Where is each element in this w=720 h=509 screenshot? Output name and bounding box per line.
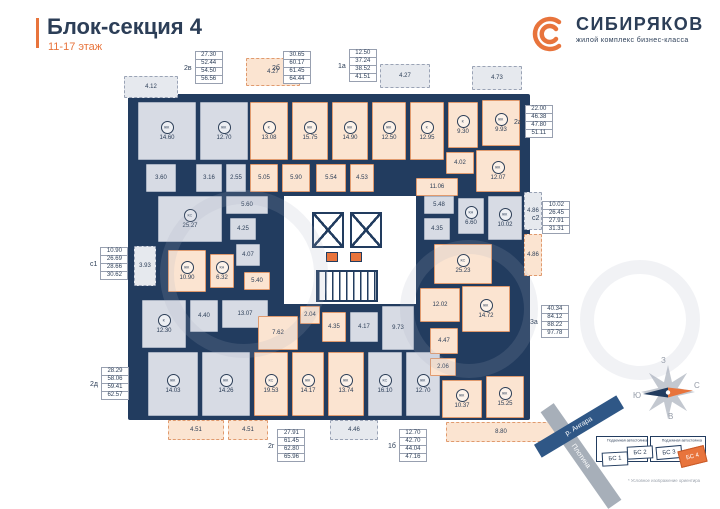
room-area-label: 2.55 (230, 175, 242, 181)
room-type-badge: ЖК (340, 374, 353, 387)
room-area-label: 25.23 (455, 268, 470, 274)
floor-plan: 4.12ЖК14.60ЖК12.703.603.162.554.27К13.08… (0, 0, 720, 508)
room: 5.05 (250, 164, 278, 192)
room-area-label: 5.54 (325, 175, 337, 181)
room-area-label: 4.46 (348, 427, 360, 433)
area-values: 10.0226.4527.9131.31 (542, 202, 570, 234)
room: 11.06 (416, 178, 458, 196)
room: 4.35 (322, 312, 346, 342)
elevator-shaft-2 (350, 212, 382, 248)
balcony: 4.12 (124, 76, 178, 98)
room-type-badge: К (421, 121, 434, 134)
room-area-label: 12.50 (381, 135, 396, 141)
room-area-label: 15.75 (302, 135, 317, 141)
area-value: 62.57 (101, 391, 129, 400)
apartment-area-stack: 2а22.0046.3847.8051.11 (514, 106, 553, 138)
room-area-label: 4.47 (438, 338, 450, 344)
room-area-label: 4.51 (242, 427, 254, 433)
room-area-label: 14.03 (165, 388, 180, 394)
room: К9.30 (448, 102, 478, 148)
room-type-badge: К (457, 115, 470, 128)
room: 5.48 (424, 196, 454, 214)
room: 12.02 (420, 288, 460, 322)
room-area-label: 10.02 (497, 222, 512, 228)
apartment-code-label: 2б (272, 65, 280, 72)
room: ЖК12.70 (200, 102, 248, 160)
balcony: 3.93 (134, 246, 156, 286)
room: 3.60 (146, 164, 176, 192)
apartment-code-label: 3а (530, 319, 538, 326)
room-type-badge: ЖК (492, 161, 505, 174)
parking-right-label: Подземная автостоянка (662, 439, 694, 443)
area-value: 97.78 (541, 329, 569, 338)
balcony: 4.73 (472, 66, 522, 90)
apartment-area-stack: 2г27.9161.4562.8065.96 (268, 430, 305, 462)
room-area-label: 14.72 (478, 313, 493, 319)
room: ЖК14.03 (148, 352, 198, 416)
room-area-label: 2.04 (304, 312, 316, 318)
room-area-label: 4.35 (328, 324, 340, 330)
room: ЖК10.37 (442, 380, 482, 418)
room-area-label: 3.93 (139, 263, 151, 269)
apartment-area-stack: 2в27.3052.4454.5056.56 (184, 52, 223, 84)
room: ЖК14.90 (332, 102, 368, 160)
room: 2.04 (300, 306, 320, 324)
room: ЖК10.02 (488, 196, 522, 240)
room-type-badge: ЖК (344, 121, 357, 134)
room: К12.30 (142, 300, 186, 348)
room-type-badge: ЖК (218, 121, 231, 134)
apartment-area-stack: 1а12.5037.2438.5241.51 (338, 50, 377, 82)
room-type-badge: К (158, 314, 171, 327)
room-type-badge: КС (265, 374, 278, 387)
room: ЖК14.72 (462, 286, 510, 332)
room-area-label: 8.80 (495, 429, 507, 435)
apartment-area-stack: 1б12.7042.7044.0447.16 (388, 430, 427, 462)
compass-east-label: В (668, 412, 673, 421)
room: КН6.60 (458, 198, 484, 234)
room-area-label: 12.95 (419, 135, 434, 141)
room: 4.53 (350, 164, 374, 192)
apartment-code-label: 2г (268, 443, 274, 450)
room-area-label: 19.53 (263, 388, 278, 394)
apartment-area-stack: с210.0226.4527.9131.31 (532, 202, 570, 234)
room-area-label: 13.74 (338, 388, 353, 394)
area-values: 22.0046.3847.8051.11 (525, 106, 553, 138)
room-type-badge: ЖК (161, 121, 174, 134)
room: ЖК10.90 (168, 250, 206, 292)
room-area-label: 14.17 (300, 388, 315, 394)
area-values: 27.9161.4562.8065.96 (277, 430, 305, 462)
room-type-badge: ЖК (456, 389, 469, 402)
room: 3.16 (196, 164, 222, 192)
room-type-badge: ЖК (220, 374, 233, 387)
block-bs2: БС 2 (627, 445, 654, 459)
room-type-badge: ЖК (167, 374, 180, 387)
room-area-label: 12.70 (415, 388, 430, 394)
area-values: 12.7042.7044.0447.16 (399, 430, 427, 462)
area-value: 30.62 (100, 271, 128, 280)
room: ЖК12.07 (476, 150, 520, 192)
room: 4.47 (430, 328, 458, 354)
room: 5.90 (282, 164, 310, 192)
apartment-area-stack: 2б30.6560.1761.4564.44 (272, 52, 311, 84)
parking-left-label: Подземная автостоянка (607, 439, 637, 443)
room-area-label: 7.62 (272, 330, 284, 336)
room-area-label: 3.16 (203, 175, 215, 181)
apartment-code-label: 1б (388, 443, 396, 450)
area-value: 56.56 (195, 75, 223, 84)
compass-south-label: Ю (633, 391, 641, 400)
room: КС25.27 (158, 196, 222, 242)
room: 7.62 (258, 316, 298, 350)
area-value: 47.16 (399, 453, 427, 462)
area-value: 65.96 (277, 453, 305, 462)
apartment-area-stack: 3а40.3484.1288.2297.78 (530, 306, 569, 338)
room-area-label: 5.40 (251, 278, 263, 284)
room-area-label: 4.73 (491, 75, 503, 81)
room-area-label: 12.07 (490, 175, 505, 181)
room-area-label: 4.12 (145, 84, 157, 90)
room: ЖК15.75 (292, 102, 328, 160)
elevator-indicator-2 (350, 252, 362, 262)
room: 5.40 (244, 272, 270, 290)
room: 4.07 (236, 244, 260, 266)
room: ЖК13.74 (328, 352, 364, 416)
room: 4.17 (350, 312, 378, 342)
room-area-label: 4.86 (527, 252, 539, 258)
room-area-label: 14.26 (218, 388, 233, 394)
room-type-badge: КС (184, 209, 197, 222)
apartment-area-stack: 2д28.2958.0659.4162.57 (90, 368, 129, 400)
room-area-label: 11.06 (430, 184, 445, 190)
room-area-label: 3.60 (155, 175, 167, 181)
room-area-label: 4.40 (198, 313, 210, 319)
balcony: 4.86 (524, 234, 542, 276)
area-values: 10.9026.6928.6630.62 (100, 248, 128, 280)
room: ЖК14.26 (202, 352, 250, 416)
room-area-label: 9.93 (495, 127, 507, 133)
elevator-indicator-1 (326, 252, 338, 262)
area-value: 31.31 (542, 225, 570, 234)
room-type-badge: ЖК (480, 299, 493, 312)
room-area-label: 12.30 (156, 328, 171, 334)
room: 4.35 (424, 218, 450, 240)
room: ЖК15.25 (486, 376, 524, 418)
room-area-label: 10.90 (179, 275, 194, 281)
room-type-badge: ЖК (302, 374, 315, 387)
room-area-label: 5.48 (433, 202, 445, 208)
room-area-label: 5.90 (290, 175, 302, 181)
room-area-label: 9.30 (457, 129, 469, 135)
apartment-code-label: 2а (514, 119, 522, 126)
room: ЖК14.17 (292, 352, 324, 416)
room-area-label: 12.70 (216, 135, 231, 141)
room-area-label: 14.90 (342, 135, 357, 141)
area-value: 51.11 (525, 129, 553, 138)
room: ЖК12.50 (372, 102, 406, 160)
elevator-shaft-1 (312, 212, 344, 248)
room: КС25.23 (434, 244, 492, 284)
room-area-label: 14.60 (159, 135, 174, 141)
area-values: 40.3484.1288.2297.78 (541, 306, 569, 338)
apartment-code-label: с2 (532, 215, 539, 222)
room-area-label: 2.06 (437, 364, 449, 370)
room-type-badge: ЖК (383, 121, 396, 134)
room-area-label: 4.27 (399, 73, 411, 79)
room: 4.40 (190, 300, 218, 332)
balcony: 8.80 (446, 422, 556, 442)
room: К13.08 (250, 102, 288, 160)
floor-plan-page: Блок-секция 4 11-17 этаж СИБИРЯКОВ жилой… (0, 0, 720, 508)
room-type-badge: К (263, 121, 276, 134)
room: КС19.53 (254, 352, 288, 416)
room-area-label: 4.02 (454, 160, 466, 166)
room-area-label: 25.27 (182, 223, 197, 229)
room-area-label: 5.05 (258, 175, 270, 181)
room: 2.06 (430, 358, 456, 376)
compass-west-label: З (661, 356, 666, 365)
room-area-label: 6.60 (465, 220, 477, 226)
room-area-label: 4.51 (190, 427, 202, 433)
apartment-code-label: 1а (338, 63, 346, 70)
room: К12.95 (410, 102, 444, 160)
room-area-label: 16.10 (377, 388, 392, 394)
room: 2.55 (226, 164, 246, 192)
apartment-code-label: 2д (90, 381, 98, 388)
room: КН6.32 (210, 254, 234, 288)
room: 9.73 (382, 306, 414, 350)
room-area-label: 5.60 (241, 202, 253, 208)
room-type-badge: КН (216, 261, 229, 274)
room: 4.25 (230, 218, 256, 240)
room: КС16.10 (368, 352, 402, 416)
room: 5.60 (226, 196, 268, 214)
room-type-badge: ЖК (304, 121, 317, 134)
room-area-label: 6.32 (216, 275, 228, 281)
apartment-code-label: с1 (90, 261, 97, 268)
area-values: 27.3052.4454.5056.56 (195, 52, 223, 84)
room: ЖК14.60 (138, 102, 196, 160)
room-type-badge: ЖК (499, 208, 512, 221)
room-type-badge: КН (465, 206, 478, 219)
balcony: 4.27 (380, 64, 430, 88)
room-area-label: 13.08 (261, 135, 276, 141)
room-type-badge: КС (457, 254, 470, 267)
compass-north-label: С (694, 381, 700, 390)
room-area-label: 10.37 (454, 403, 469, 409)
room-type-badge: ЖК (181, 261, 194, 274)
room-area-label: 4.53 (356, 175, 368, 181)
room-area-label: 4.35 (431, 226, 443, 232)
area-value: 41.51 (349, 73, 377, 82)
area-values: 28.2958.0659.4162.57 (101, 368, 129, 400)
room-area-label: 12.02 (432, 302, 447, 308)
room: 5.54 (316, 164, 346, 192)
room-area-label: 4.07 (242, 252, 254, 258)
room-area-label: 4.25 (237, 226, 249, 232)
room-area-label: 13.07 (237, 311, 252, 317)
room: 4.02 (446, 152, 474, 174)
balcony: 4.51 (168, 420, 224, 440)
balcony: 4.46 (330, 420, 378, 440)
room-type-badge: ЖК (495, 113, 508, 126)
area-values: 30.6560.1761.4564.44 (283, 52, 311, 84)
balcony: 4.51 (228, 420, 268, 440)
room-area-label: 9.73 (392, 325, 404, 331)
area-value: 64.44 (283, 75, 311, 84)
room-area-label: 15.25 (497, 401, 512, 407)
apartment-area-stack: с110.9026.6928.6630.62 (90, 248, 128, 280)
site-plan-footnote: * Условное изображение ориентира (628, 479, 707, 483)
apartment-code-label: 2в (184, 65, 192, 72)
block-bs1: БС 1 (602, 451, 629, 466)
room-type-badge: КС (379, 374, 392, 387)
area-values: 12.5037.2438.5241.51 (349, 50, 377, 82)
room-area-label: 4.17 (358, 324, 370, 330)
room-type-badge: ЖК (417, 374, 430, 387)
stairwell (316, 270, 378, 302)
room-type-badge: ЖК (499, 387, 512, 400)
